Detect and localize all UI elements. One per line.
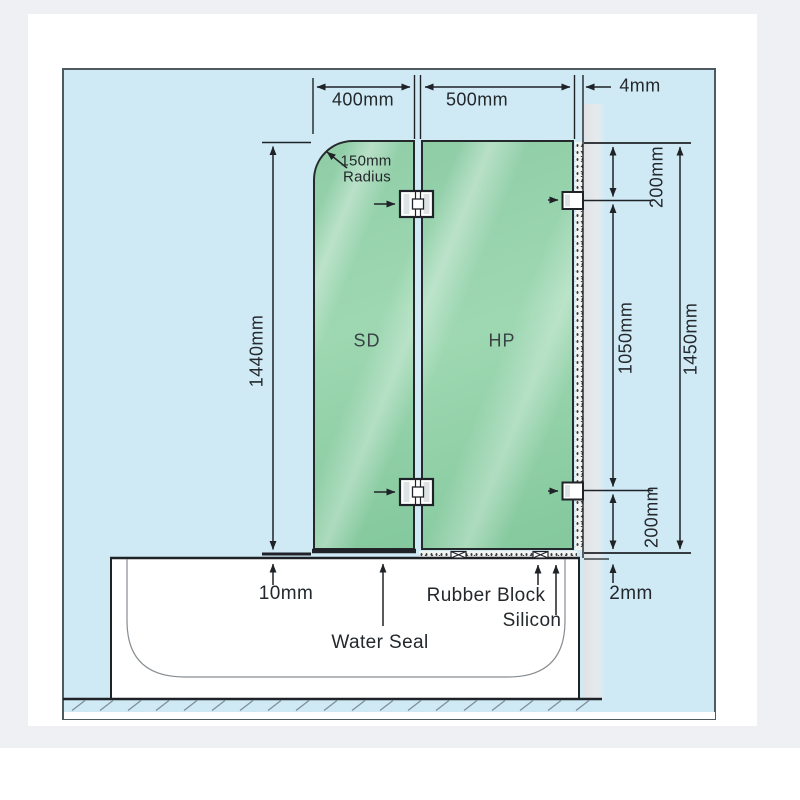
dim-label-floor-gap: 2mm (609, 583, 652, 605)
dim-label-sd-height: 1440mm (247, 315, 268, 387)
dim-label-bottom-hinge-offset: 200mm (642, 486, 663, 548)
label-radius-word: Radius (343, 169, 391, 186)
annotation-arrows (273, 152, 556, 626)
left-dimension-lines (262, 143, 311, 555)
label-silicon: Silicon (503, 610, 562, 632)
label-water-seal: Water Seal (331, 632, 428, 654)
hinge-top (400, 191, 433, 217)
dim-label-hinge-spacing: 1050mm (616, 302, 637, 374)
dim-label-hp-height: 1450mm (681, 303, 702, 375)
dimension-linework (0, 0, 800, 800)
dim-label-sd-width: 400mm (332, 90, 394, 111)
panel-label-hp: HP (488, 331, 515, 352)
label-rubber-block: Rubber Block (427, 585, 546, 607)
wall-bracket-bottom (563, 483, 584, 500)
hinge-bottom (400, 479, 433, 505)
label-radius-value: 150mm (340, 153, 391, 170)
dim-label-wall-gap: 4mm (619, 76, 660, 97)
dim-label-bath-gap: 10mm (259, 583, 313, 605)
extension-lines (313, 75, 583, 558)
dim-label-top-hinge-offset: 200mm (647, 146, 668, 208)
floor-hatch (72, 701, 589, 711)
panel-label-sd: SD (353, 331, 380, 352)
dim-label-hp-width: 500mm (446, 90, 508, 111)
right-dimension-lines (584, 143, 691, 583)
wall-bracket-top (563, 192, 584, 209)
hardware-pointer-arrows (374, 200, 558, 492)
